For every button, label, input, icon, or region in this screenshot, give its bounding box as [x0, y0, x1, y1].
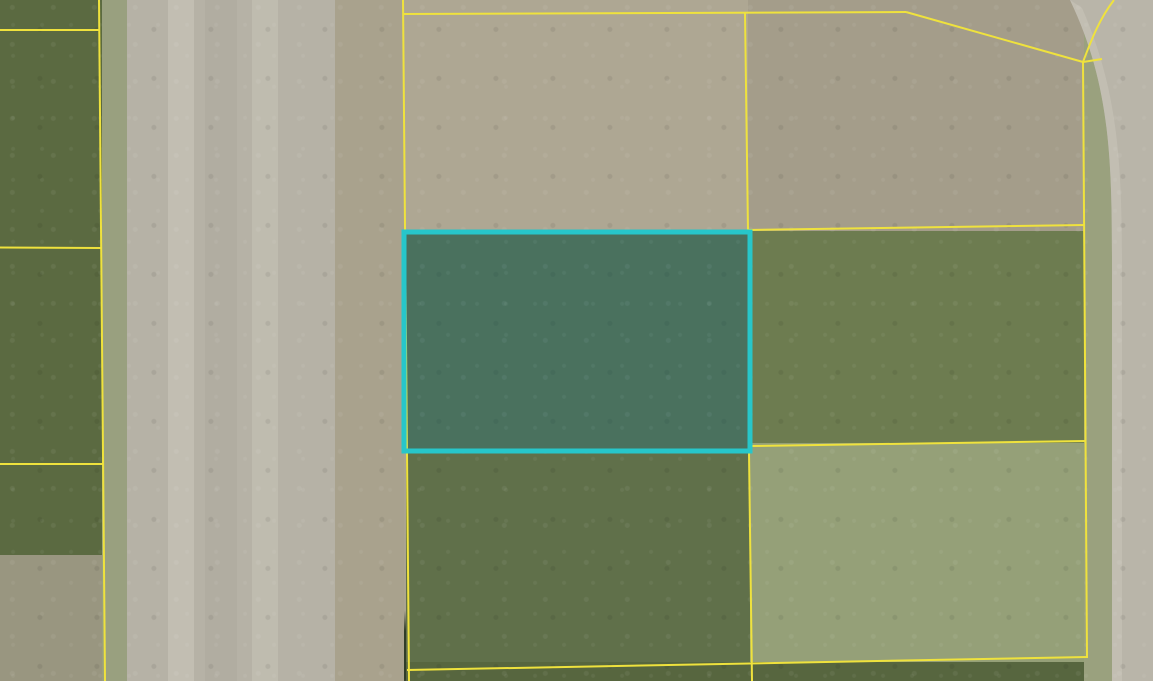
- parcel-boundary-lines: [0, 0, 1153, 681]
- highlight-rectangle: [404, 232, 750, 451]
- aerial-map: 02001 0280 28 02001 0270 27 02001 0260 2…: [0, 0, 1153, 681]
